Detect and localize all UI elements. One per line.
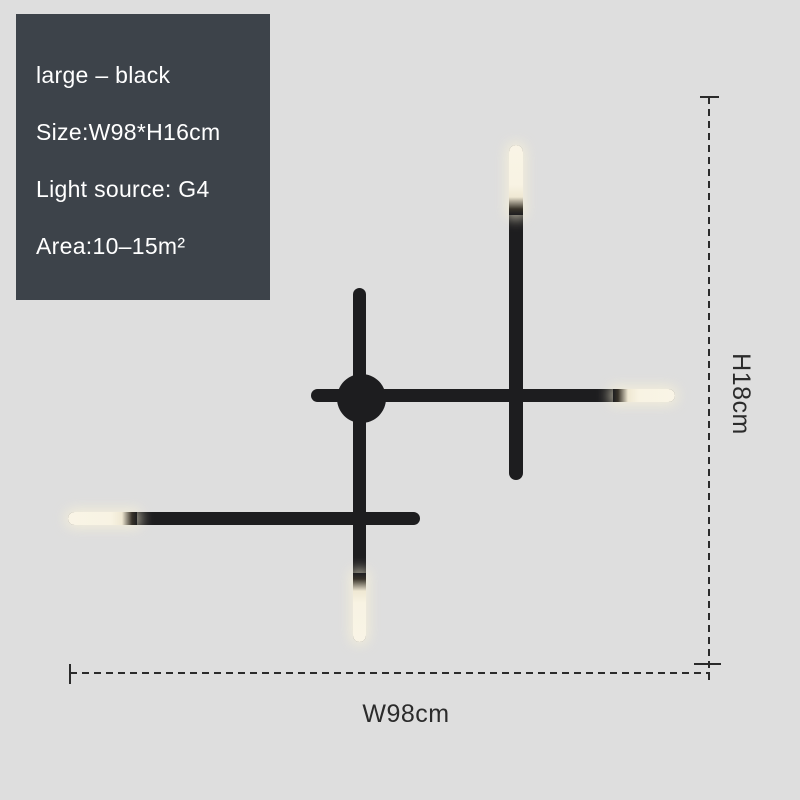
led-tip-right [613, 389, 675, 402]
height-dimension-bottom-tick [694, 663, 721, 665]
spec-line-area: Area:10–15m² [36, 218, 260, 275]
width-dimension-left-tick [69, 664, 71, 684]
width-dimension-label: W98cm [351, 699, 461, 729]
height-dimension-dashed-line [708, 97, 710, 683]
led-tip-top [509, 145, 523, 215]
product-image-canvas: large – black Size:W98*H16cm Light sourc… [0, 0, 800, 800]
height-dimension-label: H18cm [726, 334, 756, 454]
width-dimension-dashed-line [70, 672, 710, 674]
spec-line-variant: large – black [36, 47, 260, 104]
led-tip-left [68, 512, 137, 525]
led-tip-bottom [353, 573, 366, 642]
spec-line-light-source: Light source: G4 [36, 161, 260, 218]
spec-panel: large – black Size:W98*H16cm Light sourc… [16, 14, 270, 300]
spec-line-size: Size:W98*H16cm [36, 104, 260, 161]
height-dimension-top-tick [700, 96, 719, 98]
